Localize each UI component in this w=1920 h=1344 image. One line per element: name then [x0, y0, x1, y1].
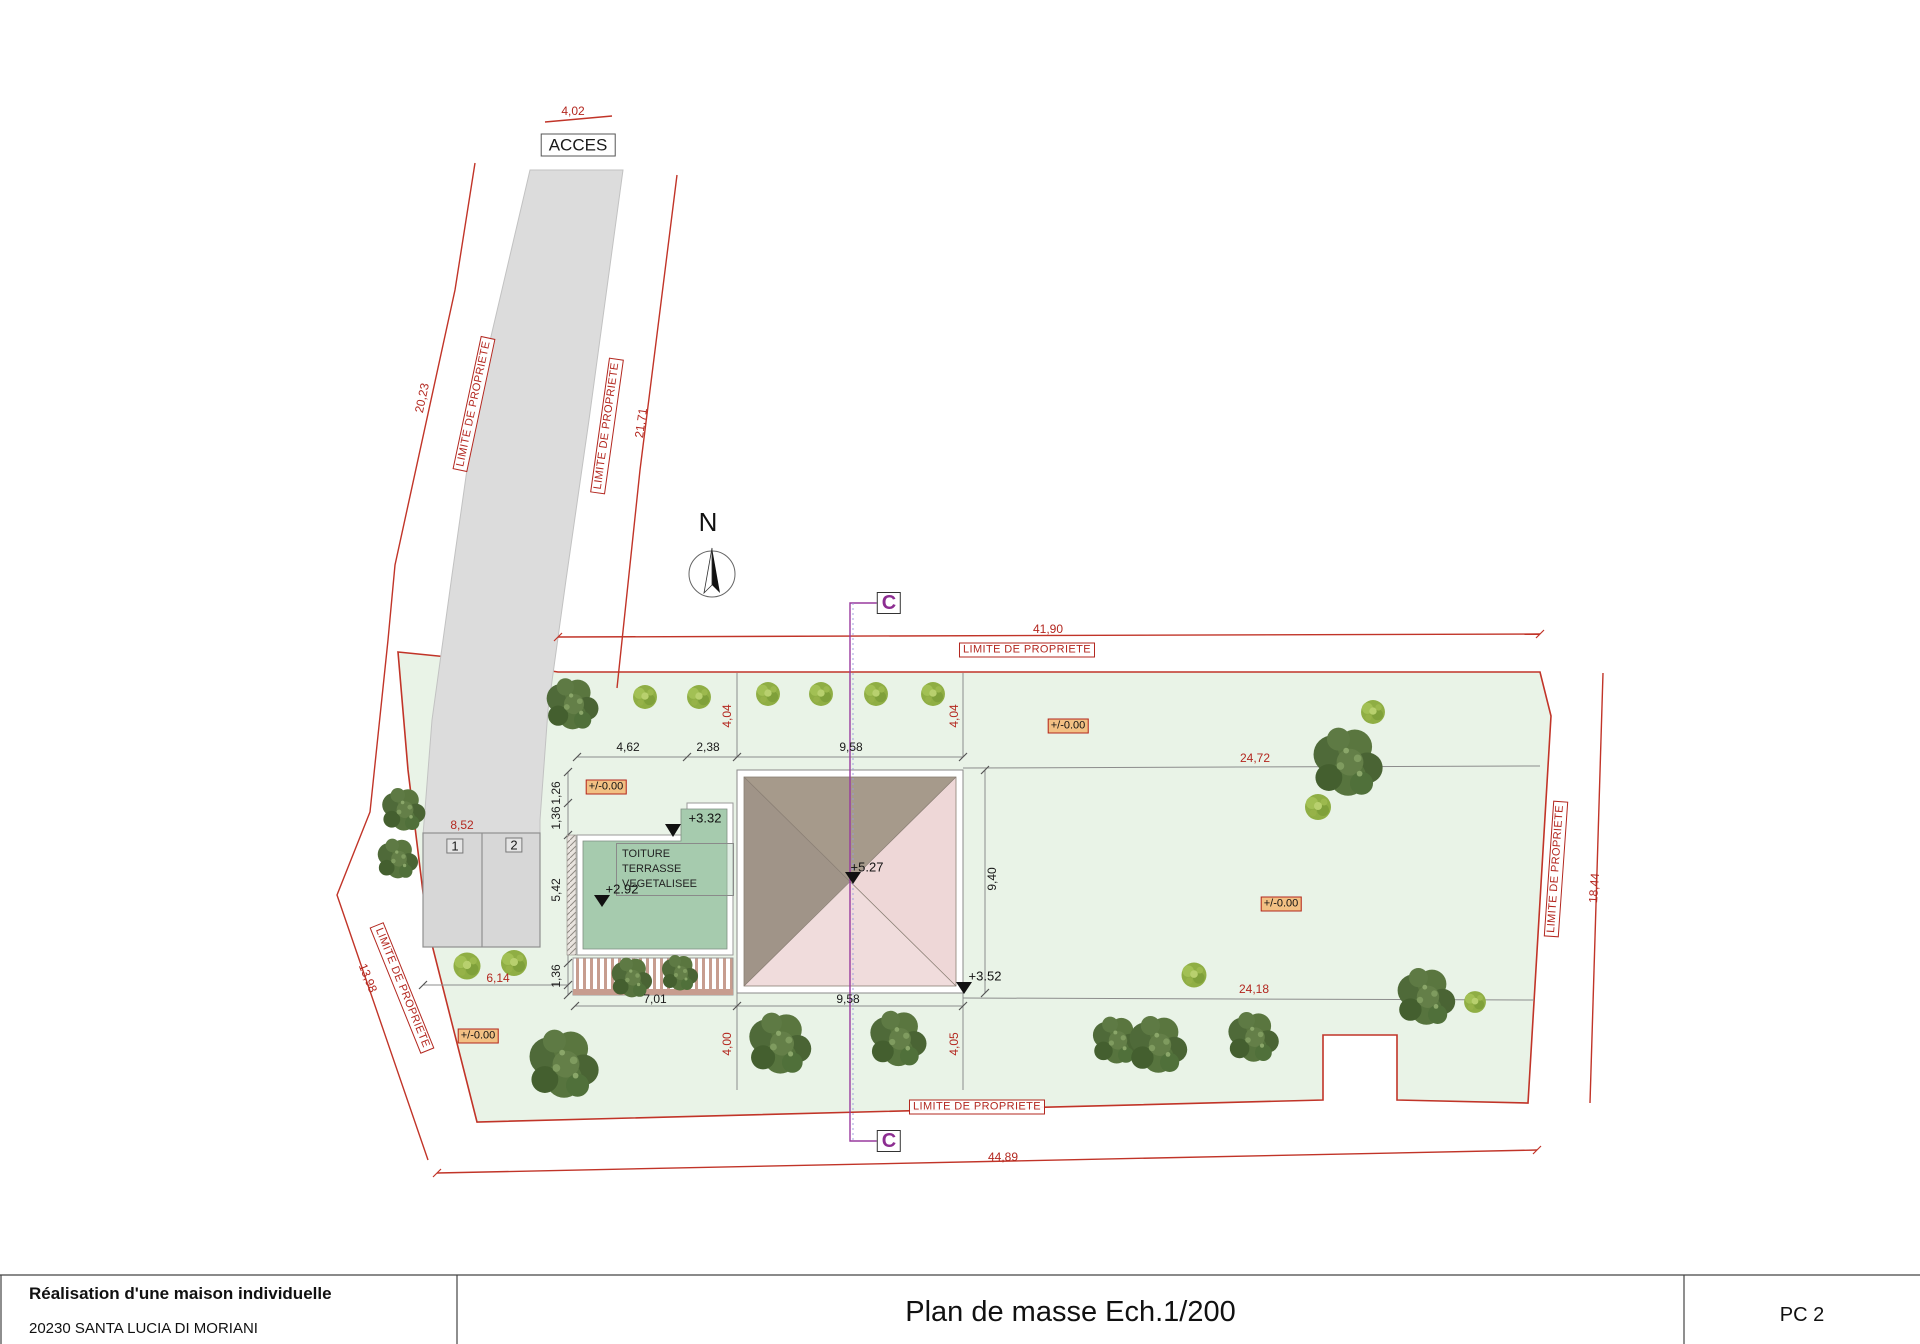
- site-plan-sheet: 4,02 ACCES 20,23 LIMITE DE PROPRIETE LIM…: [0, 0, 1920, 1344]
- dim-gap-bottom-right: 4,05: [948, 1032, 960, 1055]
- plan-drawing: [0, 0, 1920, 1344]
- dim-parking-side: 6,14: [486, 972, 509, 984]
- dim-gap-top-left: 4,04: [721, 704, 733, 727]
- sheet-number: PC 2: [1684, 1304, 1920, 1327]
- tree-icon: [1361, 700, 1385, 724]
- tree-icon: [809, 682, 833, 706]
- parking-spot-1: 1: [446, 839, 463, 854]
- section-marker-bottom: C: [877, 1130, 901, 1152]
- dim-south-boundary: 44,89: [988, 1151, 1018, 1163]
- dim-right-upper: 24,72: [1240, 752, 1270, 764]
- dim-gap-bottom-left: 4,00: [721, 1032, 733, 1055]
- tree-icon: [687, 685, 711, 709]
- access-label: ACCES: [541, 134, 616, 157]
- level-352: +3.52: [969, 970, 1002, 983]
- sheet-title: Plan de masse Ech.1/200: [457, 1296, 1684, 1329]
- tree-icon: [756, 682, 780, 706]
- level-332: +3.32: [689, 812, 722, 825]
- project-title: Réalisation d'une maison individuelle: [29, 1284, 332, 1304]
- terrace-edge-hatch: [567, 835, 576, 955]
- dim-136-a: 1,36: [550, 806, 562, 829]
- dim-access-width: 4,02: [561, 105, 584, 117]
- dim-462: 4,62: [616, 741, 639, 753]
- dim-parking-width: 8,52: [450, 819, 473, 831]
- tree-icon: [864, 682, 888, 706]
- tree-icon: [453, 952, 480, 979]
- dim-gap-top-right: 4,04: [948, 704, 960, 727]
- section-marker-top: C: [877, 592, 901, 614]
- level-zero-bottom-left: +/-0.00: [458, 1029, 499, 1044]
- tree-icon: [921, 682, 945, 706]
- dim-542: 5,42: [550, 878, 562, 901]
- tree-icon: [1464, 991, 1486, 1013]
- project-address: 20230 SANTA LUCIA DI MORIANI: [29, 1320, 258, 1337]
- dim-940: 9,40: [986, 867, 998, 890]
- level-zero-top-right: +/-0.00: [1048, 719, 1089, 734]
- tree-icon: [633, 685, 657, 709]
- dim-east-boundary: 18,44: [1587, 873, 1601, 904]
- level-292: +2.92: [606, 883, 639, 896]
- pergola: [573, 958, 733, 995]
- dim-238: 2,38: [696, 741, 719, 753]
- tree-icon: [1305, 794, 1331, 820]
- north-letter: N: [699, 509, 718, 535]
- north-arrow-icon: [689, 548, 735, 597]
- dim-north-boundary: 41,90: [1033, 623, 1063, 635]
- level-zero-left: +/-0.00: [586, 780, 627, 795]
- tree-icon: [1182, 963, 1207, 988]
- dim-958-top: 9,58: [839, 741, 862, 753]
- parking-spot-2: 2: [505, 838, 522, 853]
- property-limit-label-north: LIMITE DE PROPRIETE: [959, 643, 1095, 658]
- dim-136-b: 1,36: [550, 964, 562, 987]
- level-zero-right: +/-0.00: [1261, 897, 1302, 912]
- dim-right-lower: 24,18: [1239, 983, 1269, 995]
- dim-958-bottom: 9,58: [836, 993, 859, 1005]
- property-limit-label-south: LIMITE DE PROPRIETE: [909, 1100, 1045, 1115]
- level-527: +5.27: [851, 861, 884, 874]
- tree-icon: [378, 839, 418, 879]
- green-roof-label-line1: TOITURE TERRASSE: [622, 847, 728, 877]
- dim-126: 1,26: [550, 781, 562, 804]
- dim-701: 7,01: [643, 993, 666, 1005]
